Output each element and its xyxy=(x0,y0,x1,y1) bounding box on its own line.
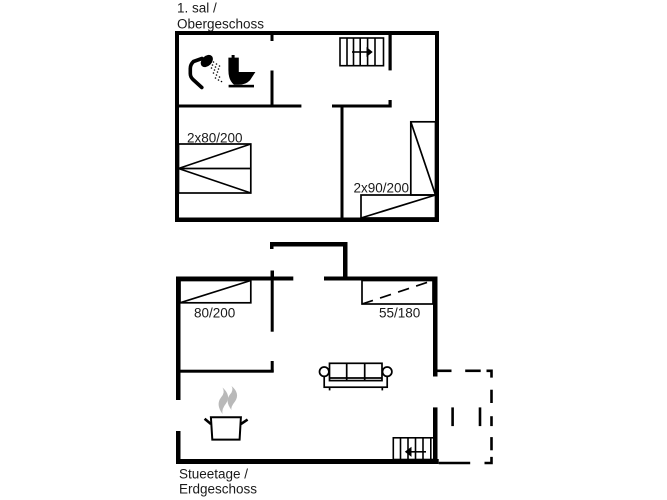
svg-text:1. sal /: 1. sal / xyxy=(177,1,217,16)
svg-text:2x90/200: 2x90/200 xyxy=(354,181,410,196)
svg-text:55/180: 55/180 xyxy=(379,306,420,321)
svg-text:Erdgeschoss: Erdgeschoss xyxy=(179,482,257,497)
svg-text:Obergeschoss: Obergeschoss xyxy=(177,17,264,32)
svg-text:Stueetage /: Stueetage / xyxy=(179,467,248,482)
svg-text:80/200: 80/200 xyxy=(194,306,235,321)
